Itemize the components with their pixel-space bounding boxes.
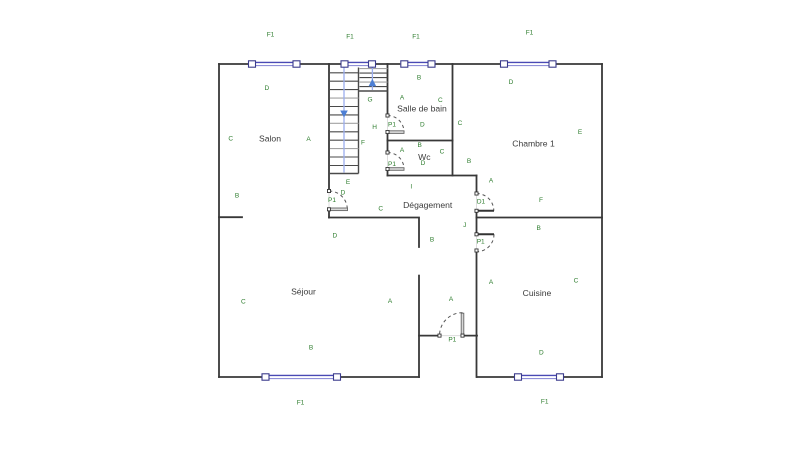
svg-text:Salon: Salon	[259, 134, 281, 144]
svg-text:A: A	[388, 298, 393, 305]
svg-text:D: D	[539, 350, 544, 357]
svg-text:F1: F1	[541, 399, 549, 406]
svg-text:A: A	[449, 296, 454, 303]
svg-text:C: C	[574, 278, 579, 285]
svg-text:F: F	[539, 197, 543, 204]
svg-text:D1: D1	[477, 199, 486, 206]
svg-text:Cuisine: Cuisine	[523, 288, 552, 298]
svg-text:F1: F1	[267, 32, 275, 39]
svg-text:C: C	[228, 135, 233, 142]
svg-text:P1: P1	[388, 161, 396, 168]
svg-text:D: D	[509, 79, 514, 86]
svg-text:E: E	[346, 179, 351, 186]
svg-text:P1: P1	[477, 239, 485, 246]
svg-text:Dégagement: Dégagement	[403, 200, 453, 210]
svg-text:Séjour: Séjour	[291, 287, 316, 297]
svg-text:D: D	[421, 160, 426, 167]
svg-text:B: B	[235, 193, 239, 200]
svg-text:A: A	[400, 147, 405, 154]
svg-text:C: C	[458, 120, 463, 127]
svg-text:P1: P1	[448, 337, 456, 344]
svg-text:F1: F1	[526, 30, 534, 37]
svg-text:G: G	[367, 97, 372, 104]
svg-text:Salle de bain: Salle de bain	[397, 104, 447, 114]
svg-text:F1: F1	[346, 34, 354, 41]
svg-text:P1: P1	[388, 122, 396, 129]
svg-text:B: B	[417, 75, 421, 82]
svg-text:E: E	[578, 129, 583, 136]
svg-text:H: H	[372, 124, 377, 131]
svg-text:C: C	[438, 97, 443, 104]
svg-text:B: B	[309, 344, 313, 351]
svg-text:A: A	[306, 136, 311, 143]
svg-text:B: B	[537, 225, 541, 232]
svg-text:A: A	[489, 178, 494, 185]
svg-text:D: D	[341, 190, 346, 197]
svg-text:Chambre 1: Chambre 1	[512, 139, 555, 149]
svg-text:P1: P1	[328, 197, 336, 204]
svg-text:F: F	[361, 140, 365, 147]
svg-text:A: A	[489, 279, 494, 286]
svg-text:J: J	[463, 222, 466, 229]
svg-text:A: A	[400, 95, 405, 102]
svg-text:F1: F1	[412, 34, 420, 41]
svg-text:C: C	[241, 298, 246, 305]
svg-text:D: D	[264, 85, 269, 92]
svg-text:F1: F1	[297, 400, 305, 407]
svg-text:C: C	[378, 206, 383, 213]
svg-text:D: D	[420, 122, 425, 129]
svg-text:D: D	[333, 233, 338, 240]
svg-text:I: I	[410, 184, 412, 191]
svg-text:B: B	[418, 142, 422, 149]
svg-text:B: B	[467, 158, 471, 165]
svg-text:B: B	[430, 237, 434, 244]
svg-text:C: C	[440, 149, 445, 156]
